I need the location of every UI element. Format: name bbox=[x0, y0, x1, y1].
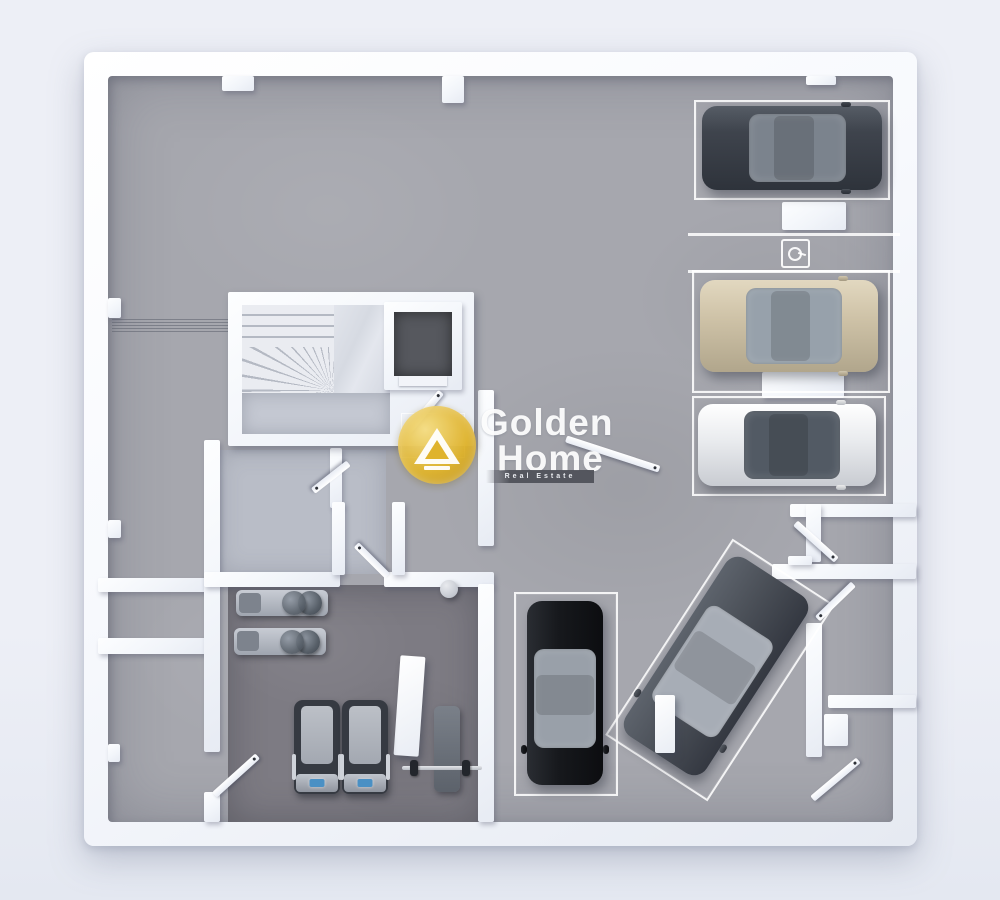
dark-suv bbox=[702, 106, 882, 190]
weight-plate bbox=[280, 630, 304, 654]
treadmill-console bbox=[296, 774, 338, 792]
machine-seat bbox=[237, 631, 259, 651]
weight-machine bbox=[236, 590, 328, 616]
partition-wall bbox=[772, 564, 916, 579]
ramp-grating bbox=[112, 317, 234, 333]
partition-wall bbox=[824, 714, 848, 746]
floor-plan-render: Golden Home Real Estate bbox=[0, 0, 1000, 900]
barbell-plate bbox=[410, 760, 418, 776]
treadmill-belt bbox=[301, 706, 333, 764]
car-mirror bbox=[836, 400, 846, 405]
elevator-door-sill bbox=[399, 376, 447, 386]
wall-pilaster bbox=[108, 744, 120, 762]
wall-pilaster bbox=[108, 298, 121, 318]
beige-sedan bbox=[700, 280, 878, 372]
staircase-flight bbox=[242, 305, 334, 347]
partition-wall bbox=[98, 638, 214, 654]
parking-symbol-icon bbox=[781, 239, 810, 268]
elevator-shaft bbox=[394, 312, 452, 376]
flat-bench bbox=[434, 706, 460, 792]
watermark-word-golden: Golden bbox=[480, 404, 613, 441]
car-roof bbox=[771, 291, 810, 361]
barbell-plate bbox=[462, 760, 470, 776]
wall-pilaster bbox=[222, 76, 254, 91]
car-roof bbox=[536, 675, 594, 715]
treadmill bbox=[342, 700, 388, 794]
car-roof bbox=[774, 116, 814, 180]
car-mirror bbox=[838, 276, 848, 281]
treadmill-rail bbox=[386, 754, 390, 780]
exercise-ball bbox=[440, 580, 458, 598]
structural-column bbox=[655, 695, 675, 753]
car-mirror bbox=[521, 745, 527, 754]
car-roof bbox=[769, 414, 808, 476]
partition-wall bbox=[788, 556, 812, 565]
partition-wall bbox=[392, 502, 405, 575]
treadmill-belt bbox=[349, 706, 381, 764]
weight-plate bbox=[282, 591, 306, 615]
storage-room-floor bbox=[218, 450, 386, 574]
wall-pilaster bbox=[108, 520, 121, 538]
wall-pilaster bbox=[442, 76, 464, 103]
black-sedan bbox=[527, 601, 603, 785]
car-mirror bbox=[838, 371, 848, 376]
watermark-tagline: Real Estate bbox=[486, 470, 594, 483]
machine-seat bbox=[239, 593, 261, 613]
partition-wall bbox=[98, 578, 214, 592]
logo-underline bbox=[424, 466, 450, 470]
weight-machine bbox=[234, 628, 326, 655]
white-sedan bbox=[698, 404, 876, 486]
partition-wall bbox=[204, 440, 220, 752]
parking-divider-block bbox=[782, 202, 846, 230]
partition-wall bbox=[828, 695, 916, 708]
car-mirror bbox=[841, 102, 851, 107]
stair-lobby-floor bbox=[242, 393, 390, 434]
car-mirror bbox=[841, 189, 851, 194]
treadmill bbox=[294, 700, 340, 794]
wall-pilaster bbox=[806, 76, 836, 85]
car-mirror bbox=[836, 485, 846, 490]
car-mirror bbox=[603, 745, 609, 754]
partition-wall bbox=[478, 584, 494, 822]
partition-wall bbox=[204, 572, 340, 587]
stair-landing bbox=[334, 305, 390, 393]
treadmill-console bbox=[344, 774, 386, 792]
partition-wall bbox=[332, 502, 345, 575]
